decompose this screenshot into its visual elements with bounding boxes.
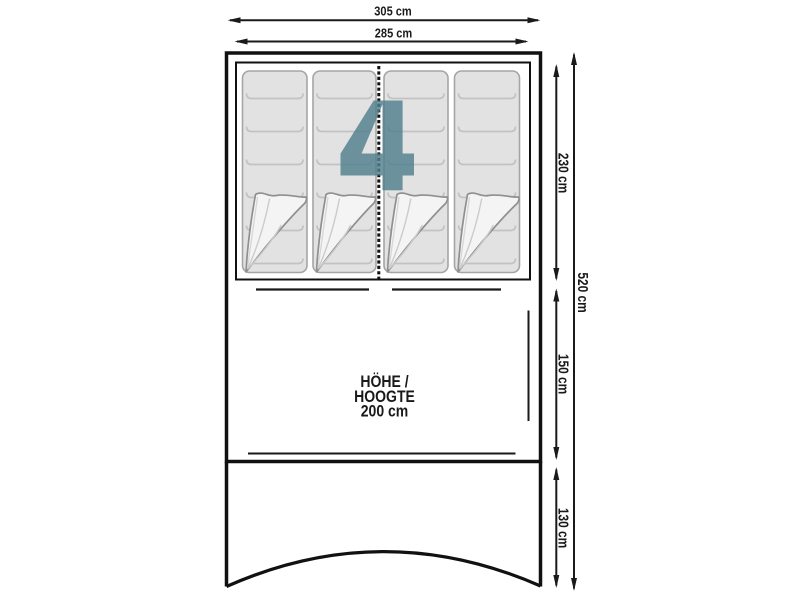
svg-text:150 cm: 150 cm — [555, 354, 571, 394]
svg-text:230 cm: 230 cm — [555, 153, 571, 193]
svg-text:285 cm: 285 cm — [375, 25, 412, 40]
svg-text:200 cm: 200 cm — [361, 402, 409, 420]
svg-text:305 cm: 305 cm — [374, 4, 411, 19]
svg-text:520 cm: 520 cm — [575, 272, 591, 312]
svg-text:130 cm: 130 cm — [555, 508, 571, 548]
